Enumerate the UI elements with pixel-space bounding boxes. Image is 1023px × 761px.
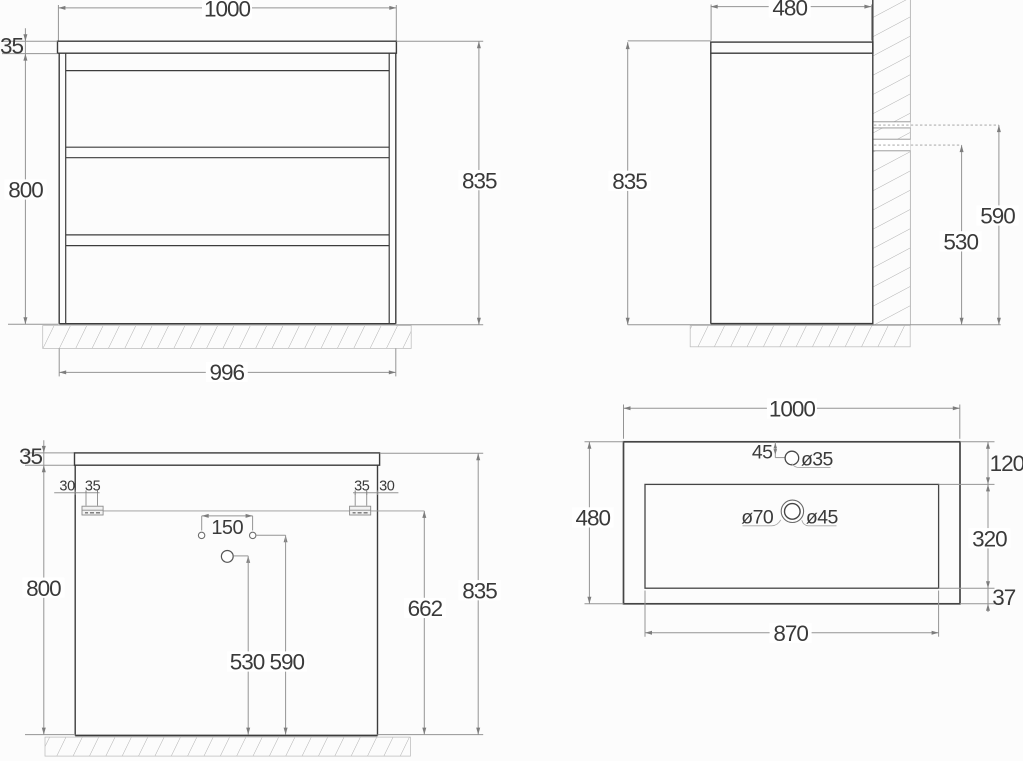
svg-text:870: 870 (773, 621, 808, 646)
svg-text:35: 35 (0, 33, 23, 58)
svg-text:662: 662 (408, 596, 443, 621)
svg-text:150: 150 (211, 517, 243, 539)
svg-text:35: 35 (85, 478, 101, 494)
svg-text:835: 835 (462, 168, 497, 193)
svg-text:35: 35 (354, 478, 370, 494)
svg-text:30: 30 (379, 478, 395, 494)
svg-text:530 590: 530 590 (230, 650, 305, 675)
svg-text:ø45: ø45 (806, 507, 839, 529)
svg-text:590: 590 (980, 204, 1015, 229)
svg-text:835: 835 (462, 578, 497, 603)
svg-text:45: 45 (752, 442, 773, 464)
svg-text:35: 35 (19, 444, 43, 469)
svg-text:480: 480 (576, 506, 611, 531)
svg-text:835: 835 (612, 169, 647, 194)
svg-text:120: 120 (990, 451, 1023, 476)
svg-text:320: 320 (972, 526, 1007, 551)
svg-text:800: 800 (26, 576, 61, 601)
svg-text:30: 30 (59, 478, 75, 494)
svg-text:530: 530 (943, 230, 978, 255)
svg-text:ø70: ø70 (741, 507, 774, 529)
svg-text:480: 480 (772, 0, 807, 21)
svg-text:1000: 1000 (769, 397, 816, 422)
svg-text:800: 800 (8, 178, 43, 203)
svg-text:1000: 1000 (204, 0, 251, 22)
svg-text:37: 37 (992, 585, 1016, 610)
svg-text:996: 996 (210, 360, 245, 385)
